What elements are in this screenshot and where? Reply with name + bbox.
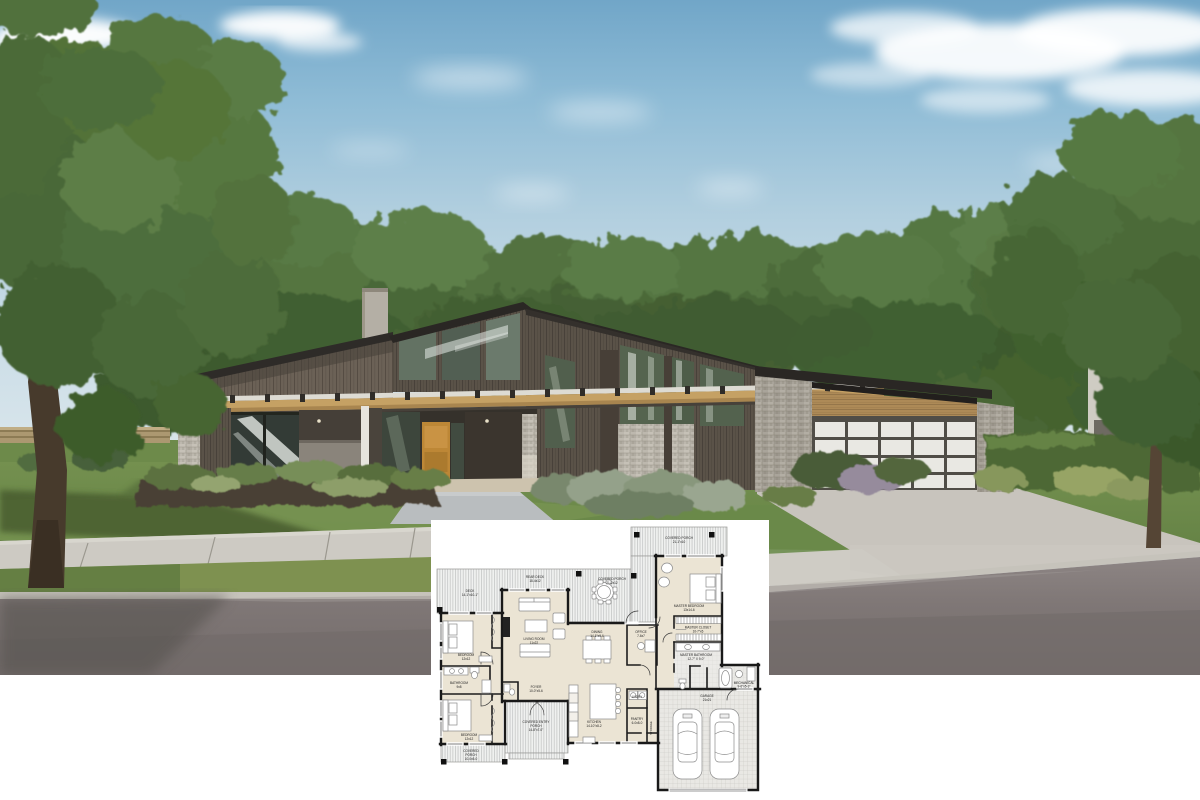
svg-text:13x14-6: 13x14-6 bbox=[683, 608, 695, 612]
svg-text:9-6"x5-3": 9-6"x5-3" bbox=[738, 685, 751, 689]
svg-text:7-6x7: 7-6x7 bbox=[637, 634, 645, 638]
svg-text:14-1"x10-1": 14-1"x10-1" bbox=[462, 593, 478, 597]
svg-text:21x21: 21x21 bbox=[703, 698, 712, 702]
svg-text:21-1"x10: 21-1"x10 bbox=[673, 540, 686, 544]
svg-text:12x12: 12x12 bbox=[465, 737, 474, 741]
svg-text:12x12: 12x12 bbox=[462, 657, 471, 661]
svg-text:6-0x8-0: 6-0x8-0 bbox=[632, 721, 643, 725]
svg-text:10-0"x5-6: 10-0"x5-6 bbox=[529, 689, 543, 693]
svg-text:9x8: 9x8 bbox=[456, 685, 461, 689]
svg-text:14-8"x7-0": 14-8"x7-0" bbox=[529, 728, 544, 732]
svg-text:11x22: 11x22 bbox=[530, 641, 539, 645]
svg-text:18-4x12: 18-4x12 bbox=[529, 579, 541, 583]
svg-text:21-2x12: 21-2x12 bbox=[606, 581, 618, 585]
svg-text:14-1"x9-6: 14-1"x9-6 bbox=[590, 634, 604, 638]
svg-text:14-10"x8-2: 14-10"x8-2 bbox=[586, 724, 602, 728]
svg-text:STORAGE: STORAGE bbox=[649, 721, 653, 735]
svg-text:LNDRY: LNDRY bbox=[632, 695, 643, 699]
svg-text:12-7" X 9-0": 12-7" X 9-0" bbox=[688, 657, 705, 661]
svg-text:10-7"x6: 10-7"x6 bbox=[693, 629, 704, 633]
svg-text:10-0x5-0: 10-0x5-0 bbox=[465, 757, 478, 761]
